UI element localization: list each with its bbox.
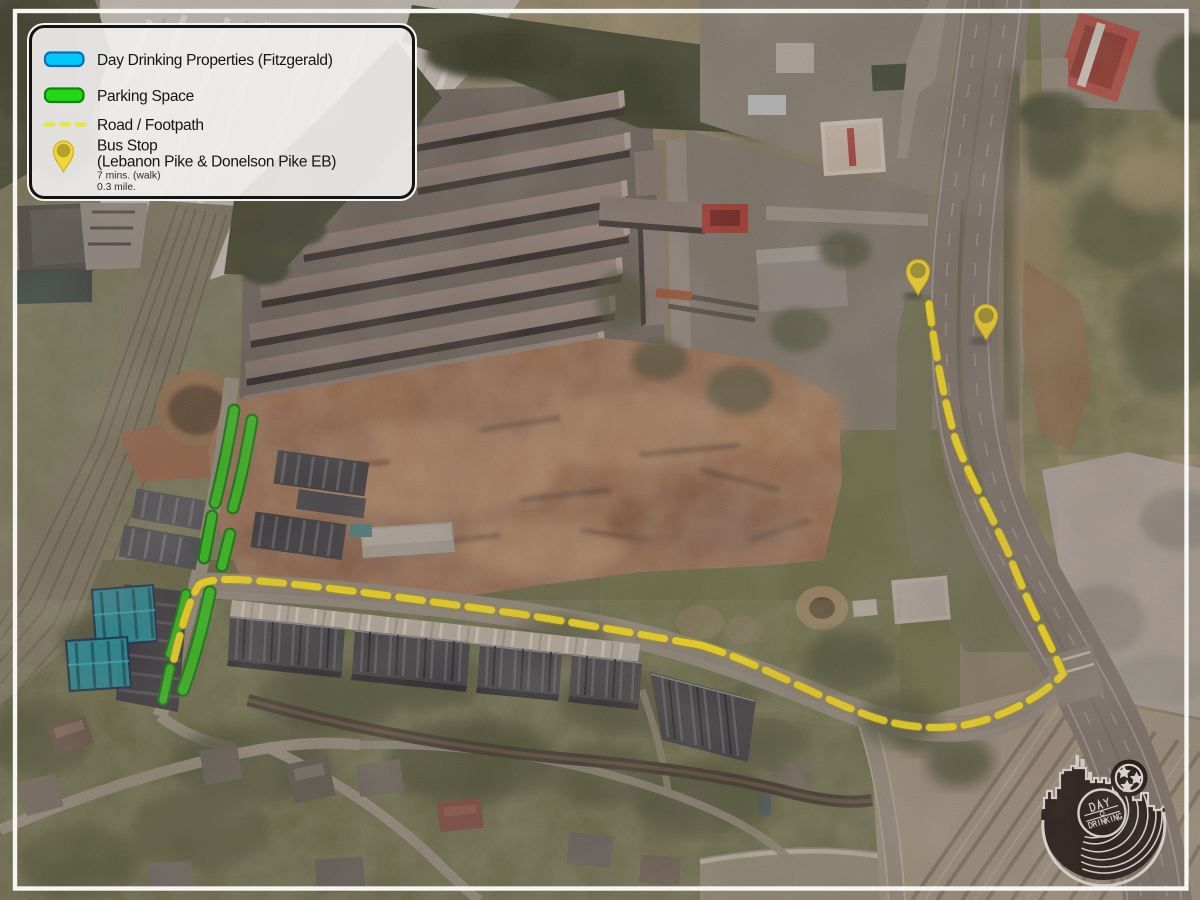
svg-text:7 mins. (walk): 7 mins. (walk) (97, 171, 161, 182)
svg-text:Bus Stop: Bus Stop (97, 138, 158, 155)
svg-text:0.3 mile.: 0.3 mile. (97, 182, 136, 193)
svg-text:Day Drinking Properties (Fitzg: Day Drinking Properties (Fitzgerald) (97, 52, 333, 69)
svg-text:(Lebanon Pike & Donelson Pike: (Lebanon Pike & Donelson Pike EB) (97, 154, 336, 171)
svg-text:Parking Space: Parking Space (97, 88, 194, 105)
svg-text:Road / Footpath: Road / Footpath (97, 117, 204, 134)
